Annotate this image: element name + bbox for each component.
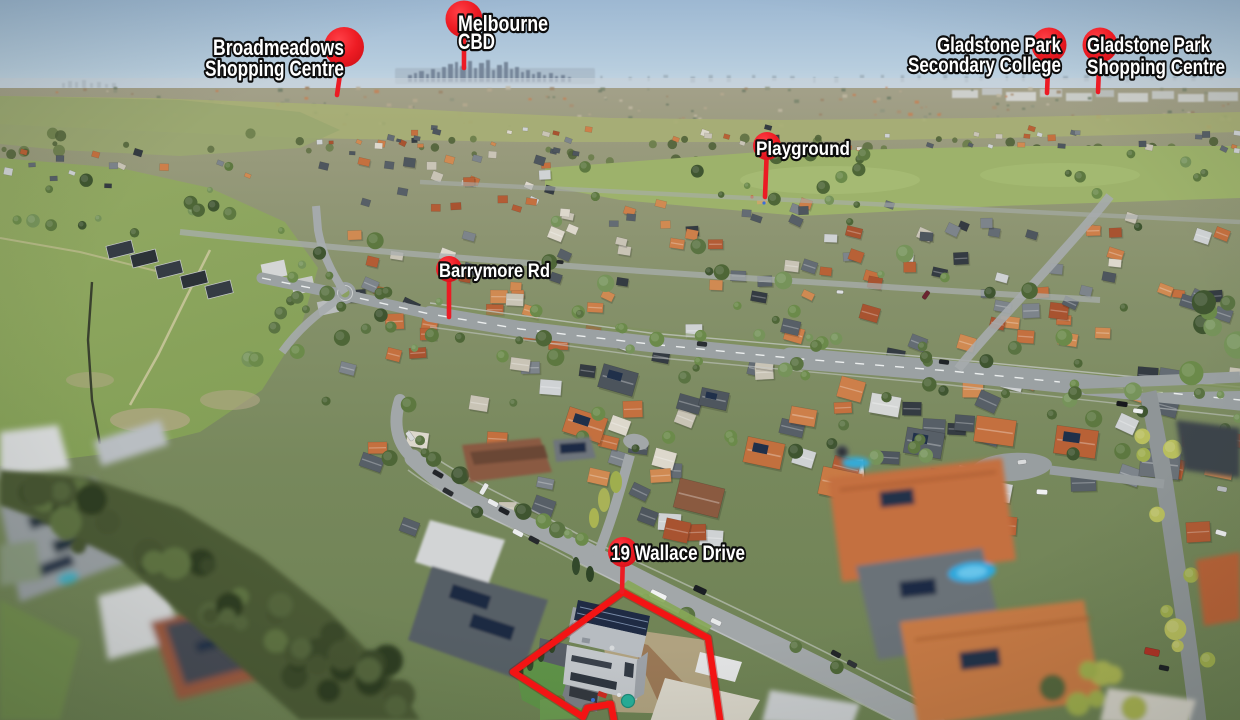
- map-label-19-wallace-drive: 19 Wallace Drive: [611, 542, 745, 565]
- map-label-playground: Playground: [756, 139, 850, 160]
- aerial-photo-stage: BroadmeadowsShopping CentreMelbourneCBDG…: [0, 0, 1240, 720]
- vignette: [0, 0, 1240, 720]
- aerial-photo: BroadmeadowsShopping CentreMelbourneCBDG…: [0, 0, 1240, 720]
- map-label-gladstone-park-shopping-centre: Gladstone ParkShopping Centre: [1087, 34, 1225, 79]
- map-label-barrymore-rd: Barrymore Rd: [439, 260, 550, 282]
- map-label-broadmeadows-shopping-centre: BroadmeadowsShopping Centre: [205, 35, 344, 81]
